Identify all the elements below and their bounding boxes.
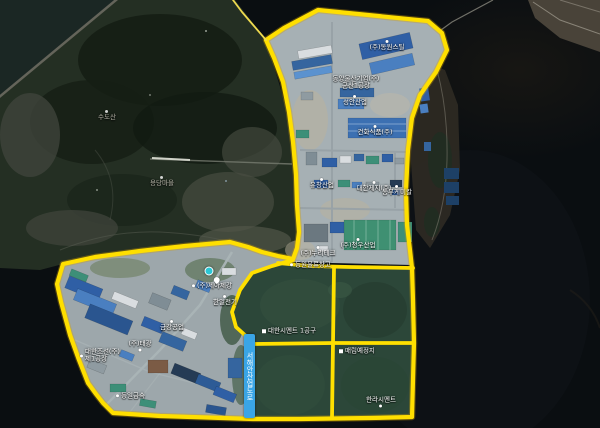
map-imagery <box>0 0 600 428</box>
satellite-map: 서해안산업도로 (주)동원스틸동양물산기업(주) 군산1공장성안산업건화식품(주… <box>0 0 600 428</box>
road-name-banner: 서해안산업도로 <box>244 334 255 418</box>
green-field-zone <box>232 263 414 419</box>
inner-line-field-horizontal <box>251 343 414 344</box>
